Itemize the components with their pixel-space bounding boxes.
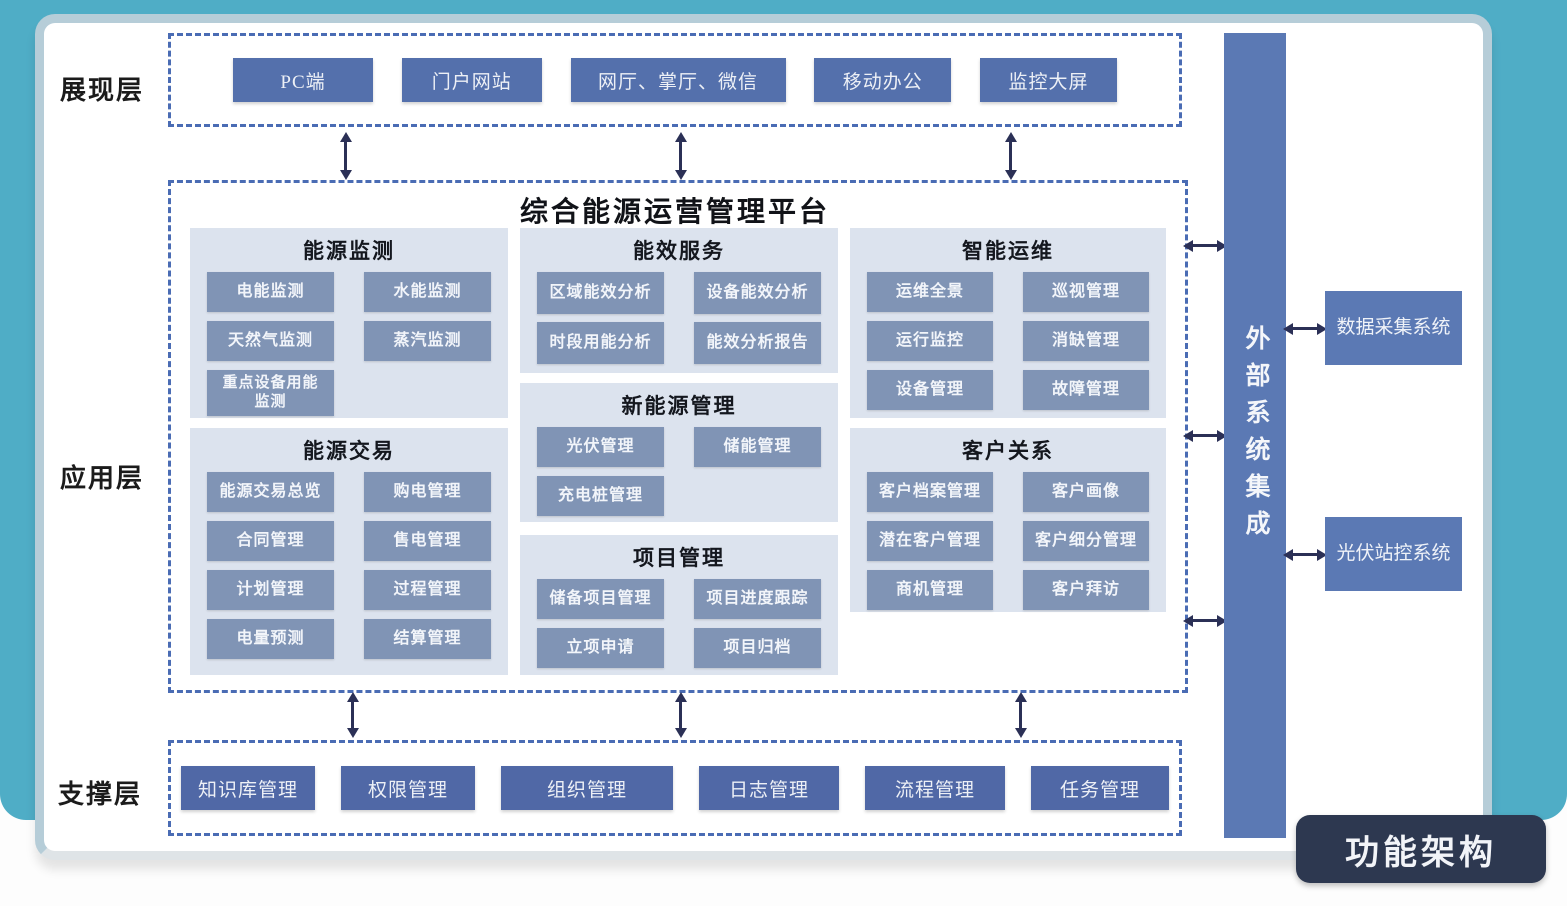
node-customer-portrait: 客户画像	[1023, 472, 1149, 512]
node-potential-customer: 潜在客户管理	[867, 521, 993, 561]
node-workflow-mgmt: 流程管理	[865, 766, 1005, 810]
node-project-archive: 项目归档	[694, 628, 821, 668]
node-pv-mgmt: 光伏管理	[537, 427, 664, 467]
section-intelligent-om: 智能运维 运维全景 巡视管理 运行监控 消缺管理 设备管理 故障管理	[850, 228, 1166, 418]
node-steam-monitoring: 蒸汽监测	[364, 321, 491, 361]
node-mobile-office: 移动办公	[814, 58, 951, 102]
node-operation-monitoring: 运行监控	[867, 321, 993, 361]
node-pv-station-control-system: 光伏站控系统	[1325, 517, 1462, 591]
node-data-collection-system: 数据采集系统	[1325, 291, 1462, 365]
node-power-forecast: 电量预测	[207, 619, 334, 659]
node-settlement-mgmt: 结算管理	[364, 619, 491, 659]
node-reserve-project-mgmt: 储备项目管理	[537, 579, 664, 619]
node-pc-client: PC端	[233, 58, 373, 102]
section-new-energy: 新能源管理 光伏管理 储能管理 充电桩管理	[520, 383, 838, 522]
double-arrow-icon	[1192, 244, 1218, 247]
node-charging-pile-mgmt: 充电桩管理	[537, 476, 664, 516]
node-customer-visit: 客户拜访	[1023, 570, 1149, 610]
section-title: 项目管理	[537, 542, 821, 572]
external-bar-label: 外部系统集成	[1237, 325, 1273, 547]
node-period-usage-analysis: 时段用能分析	[537, 322, 664, 364]
node-water-monitoring: 水能监测	[364, 272, 491, 312]
node-task-mgmt: 任务管理	[1031, 766, 1169, 810]
section-title: 新能源管理	[537, 390, 821, 420]
node-inspection-mgmt: 巡视管理	[1023, 272, 1149, 312]
double-arrow-icon	[679, 701, 682, 729]
node-permission-mgmt: 权限管理	[341, 766, 475, 810]
section-title: 智能运维	[867, 235, 1149, 265]
section-title: 能源交易	[207, 435, 491, 465]
section-energy-trading: 能源交易 能源交易总览 购电管理 合同管理 售电管理 计划管理 过程管理 电量预…	[190, 428, 508, 675]
presentation-layer-box: PC端 门户网站 网厅、掌厅、微信 移动办公 监控大屏	[168, 33, 1182, 127]
node-defect-mgmt: 消缺管理	[1023, 321, 1149, 361]
node-webhall-wechat: 网厅、掌厅、微信	[571, 58, 786, 102]
node-om-panorama: 运维全景	[867, 272, 993, 312]
node-project-application: 立项申请	[537, 628, 664, 668]
layer-label-support: 支撑层	[58, 774, 142, 811]
node-equipment-efficiency: 设备能效分析	[694, 272, 821, 314]
double-arrow-icon	[344, 141, 347, 171]
double-arrow-icon	[1192, 434, 1218, 437]
node-power-sales: 售电管理	[364, 521, 491, 561]
section-title: 能效服务	[537, 235, 821, 265]
node-organization-mgmt: 组织管理	[501, 766, 673, 810]
layer-label-application: 应用层	[60, 458, 144, 495]
node-regional-efficiency: 区域能效分析	[537, 272, 664, 314]
node-portal-website: 门户网站	[402, 58, 542, 102]
node-contract-mgmt: 合同管理	[207, 521, 334, 561]
node-customer-archive: 客户档案管理	[867, 472, 993, 512]
layer-label-presentation: 展现层	[60, 70, 144, 107]
section-title: 能源监测	[207, 235, 491, 265]
section-customer-relation: 客户关系 客户档案管理 客户画像 潜在客户管理 客户细分管理 商机管理 客户拜访	[850, 428, 1166, 612]
node-business-opportunity: 商机管理	[867, 570, 993, 610]
support-layer-box: 知识库管理 权限管理 组织管理 日志管理 流程管理 任务管理	[168, 740, 1182, 836]
double-arrow-icon	[1192, 619, 1218, 622]
node-gas-monitoring: 天然气监测	[207, 321, 334, 361]
node-log-mgmt: 日志管理	[699, 766, 839, 810]
node-trading-overview: 能源交易总览	[207, 472, 334, 512]
section-project-mgmt: 项目管理 储备项目管理 项目进度跟踪 立项申请 项目归档	[520, 535, 838, 675]
node-customer-segmentation: 客户细分管理	[1023, 521, 1149, 561]
node-project-progress: 项目进度跟踪	[694, 579, 821, 619]
node-equipment-mgmt: 设备管理	[867, 370, 993, 410]
node-power-monitoring: 电能监测	[207, 272, 334, 312]
double-arrow-icon	[679, 141, 682, 171]
double-arrow-icon	[1292, 327, 1318, 330]
double-arrow-icon	[1019, 701, 1022, 729]
node-plan-mgmt: 计划管理	[207, 570, 334, 610]
node-power-purchase: 购电管理	[364, 472, 491, 512]
double-arrow-icon	[1292, 553, 1318, 556]
platform-title: 综合能源运营管理平台	[168, 190, 1182, 230]
node-efficiency-report: 能效分析报告	[694, 322, 821, 364]
functional-architecture-diagram: 展现层 应用层 支撑层 PC端 门户网站 网厅、掌厅、微信 移动办公 监控大屏 …	[0, 0, 1567, 906]
section-title: 客户关系	[867, 435, 1149, 465]
section-energy-monitoring: 能源监测 电能监测 水能监测 天然气监测 蒸汽监测 重点设备用能监测	[190, 228, 508, 418]
double-arrow-icon	[1009, 141, 1012, 171]
node-storage-mgmt: 储能管理	[694, 427, 821, 467]
node-knowledge-base: 知识库管理	[181, 766, 315, 810]
external-system-integration-bar: 外部系统集成	[1224, 33, 1286, 838]
node-fault-mgmt: 故障管理	[1023, 370, 1149, 410]
node-key-equipment-monitoring: 重点设备用能监测	[207, 370, 334, 416]
node-monitoring-screen: 监控大屏	[980, 58, 1117, 102]
badge-functional-architecture: 功能架构	[1296, 815, 1546, 883]
section-efficiency-service: 能效服务 区域能效分析 设备能效分析 时段用能分析 能效分析报告	[520, 228, 838, 373]
double-arrow-icon	[351, 701, 354, 729]
node-process-mgmt: 过程管理	[364, 570, 491, 610]
